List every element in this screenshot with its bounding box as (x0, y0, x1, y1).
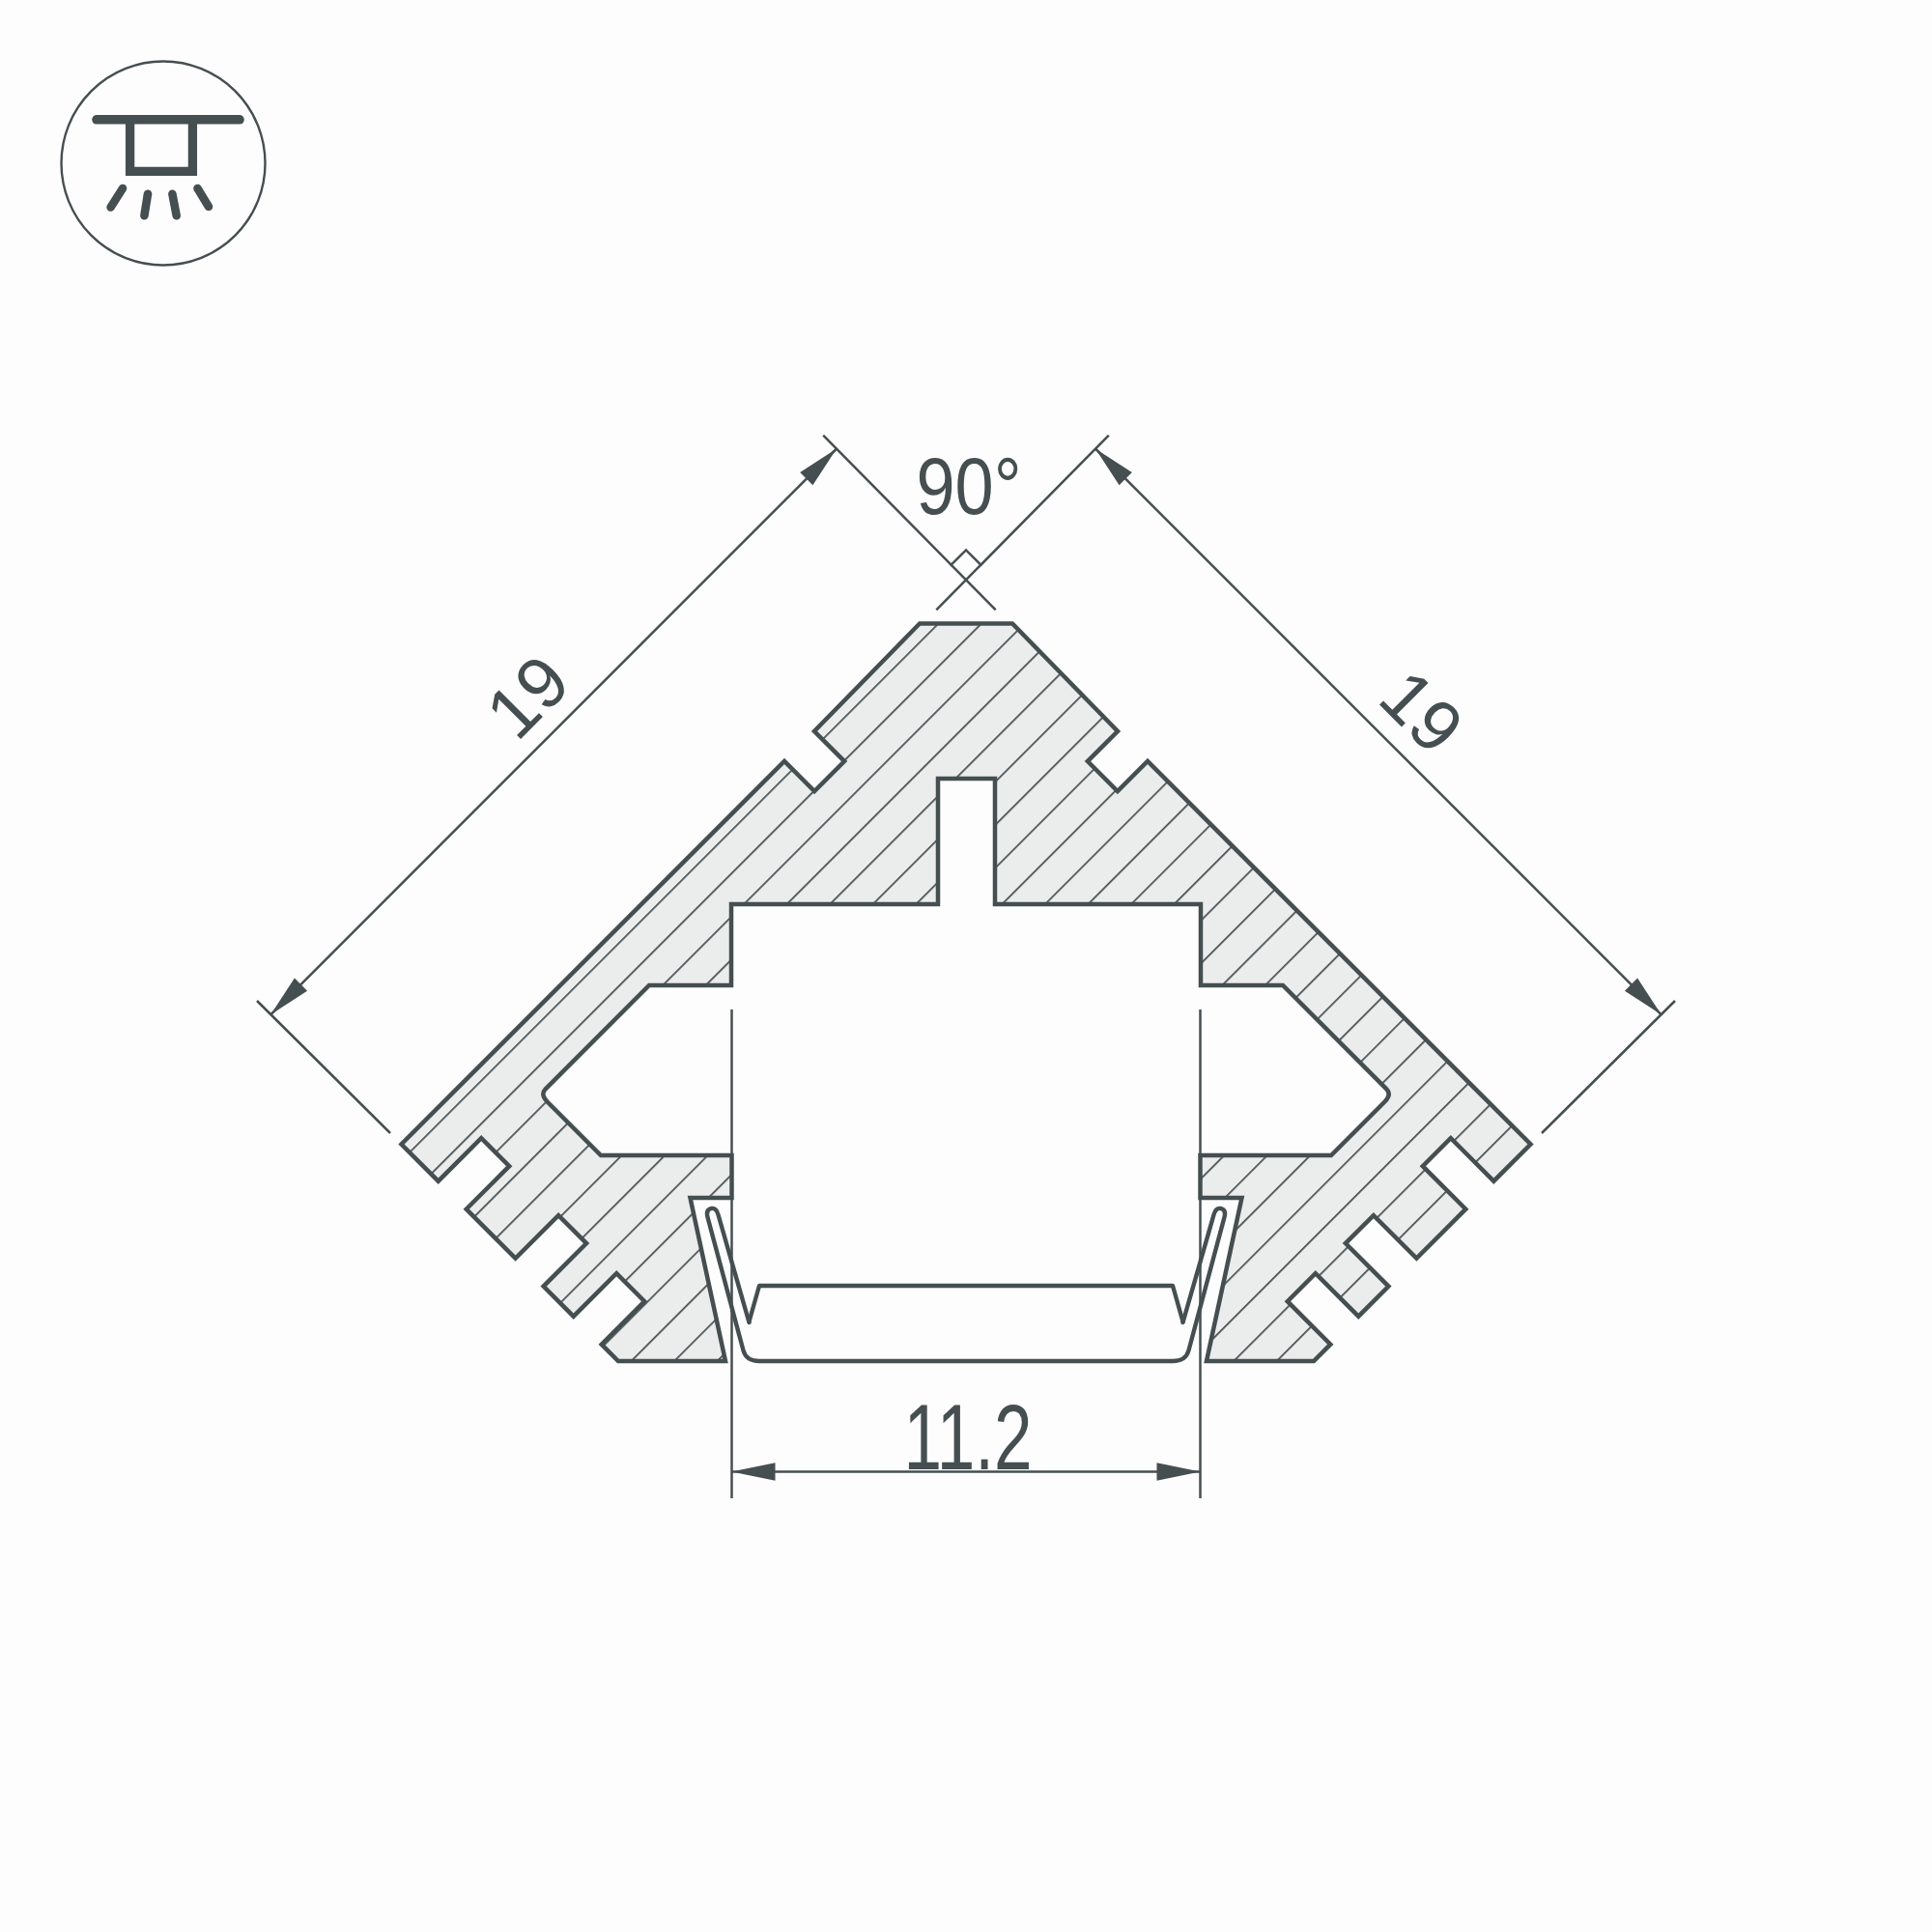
svg-text:19: 19 (470, 639, 584, 753)
svg-text:11.2: 11.2 (904, 1385, 1033, 1489)
svg-text:19: 19 (1365, 654, 1479, 768)
svg-text:90°: 90° (917, 440, 1022, 531)
